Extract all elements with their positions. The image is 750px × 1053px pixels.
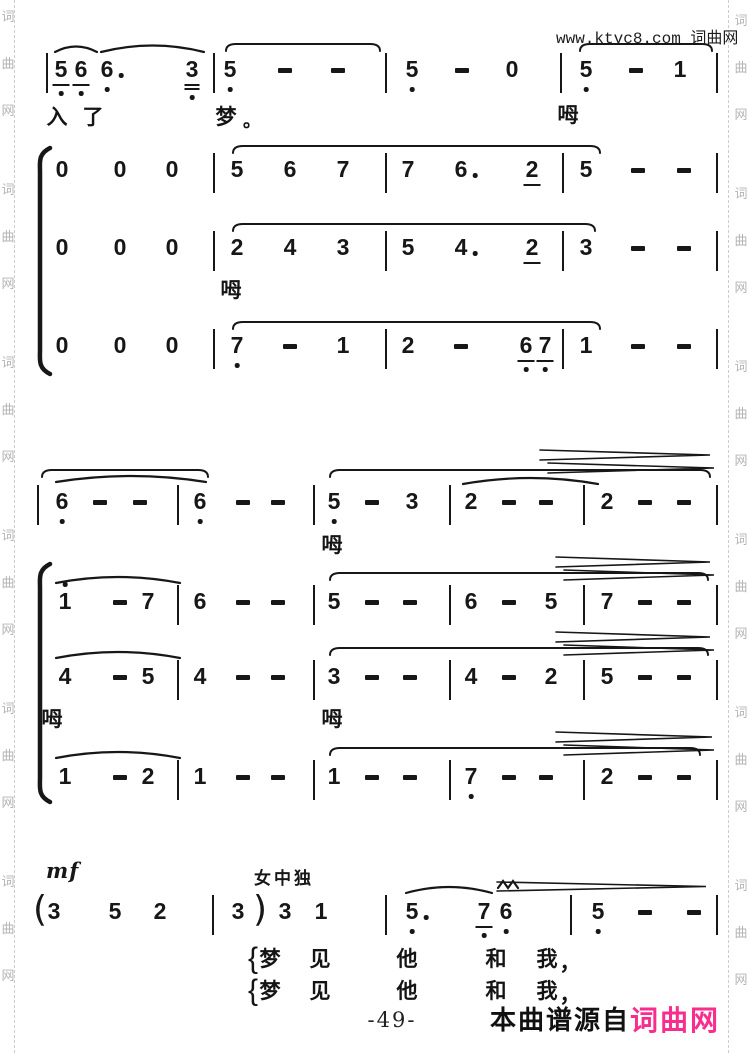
barline	[562, 231, 564, 271]
side-watermark-char: 词	[734, 875, 747, 894]
low-octave-dot	[524, 367, 529, 372]
barline	[449, 585, 451, 625]
side-watermark-char: 词	[734, 356, 747, 375]
duration-dash	[677, 600, 691, 605]
note-digit: 0	[166, 236, 179, 259]
note-digit: 0	[166, 158, 179, 181]
duration-dash	[365, 775, 379, 780]
low-octave-dot	[596, 929, 601, 934]
note-digit: 6	[284, 158, 297, 181]
barline	[716, 485, 718, 525]
note-digit: 7	[231, 334, 244, 357]
lyric-char: 他	[397, 948, 418, 971]
note-digit: 6	[520, 334, 533, 357]
side-watermark-char: 曲	[734, 749, 747, 768]
duration-dash	[278, 68, 292, 73]
barline	[449, 660, 451, 700]
duration-dash	[133, 500, 147, 505]
duration-dash	[631, 168, 645, 173]
note-digit: 0	[114, 334, 127, 357]
note-digit: 1	[194, 765, 207, 788]
side-watermark-char: 词	[734, 702, 747, 721]
barline	[46, 53, 48, 93]
slur-arc	[56, 752, 180, 758]
note-digit: 6	[194, 490, 207, 513]
note-digit: 2	[526, 236, 539, 259]
duration-dash	[271, 600, 285, 605]
lyric-char: 呣	[322, 534, 343, 557]
lyric-char: 和	[486, 980, 507, 1003]
barline	[583, 660, 585, 700]
duration-dash	[539, 500, 553, 505]
note-digit: 5	[406, 900, 419, 923]
right-margin-divider	[728, 0, 729, 1053]
duration-dash	[631, 246, 645, 251]
side-watermark-char: 词	[1, 6, 14, 25]
lyric-char: ，	[560, 984, 581, 1007]
side-watermark-char: 曲	[1, 53, 14, 72]
side-watermark-char: 词	[734, 10, 747, 29]
barline	[562, 329, 564, 369]
note-underline	[53, 84, 70, 86]
barline	[716, 760, 718, 800]
side-watermark-char: 词	[1, 525, 14, 544]
note-digit: 4	[284, 236, 297, 259]
note-underline	[524, 184, 541, 186]
side-watermark-char: 网	[1, 446, 14, 465]
note-digit: 2	[465, 490, 478, 513]
duration-dash	[113, 600, 127, 605]
hairpin-decrescendo	[540, 450, 710, 460]
barline	[716, 895, 718, 935]
note-digit: 4	[465, 665, 478, 688]
low-octave-dot	[59, 91, 64, 96]
note-digit: 5	[328, 490, 341, 513]
note-digit: 5	[231, 158, 244, 181]
barline	[213, 53, 215, 93]
slur-arc	[56, 652, 180, 658]
side-watermark-char: 网	[734, 104, 747, 123]
barline	[212, 895, 214, 935]
note-underline	[476, 926, 493, 928]
phrase-slur	[233, 146, 600, 153]
note-digit: 2	[545, 665, 558, 688]
phrase-slur	[330, 648, 708, 655]
score-sheet: www.ktvc8.com 词曲网 mf 女中独 -49- 本曲谱源自 词曲网 …	[0, 0, 750, 1053]
duration-dash	[502, 600, 516, 605]
note-digit: 5	[592, 900, 605, 923]
side-watermark-char: 网	[1, 792, 14, 811]
note-digit: 5	[142, 665, 155, 688]
barline	[716, 660, 718, 700]
note-digit: 6	[101, 58, 114, 81]
barline	[385, 53, 387, 93]
barline	[570, 895, 572, 935]
note-digit: 2	[402, 334, 415, 357]
barline	[213, 329, 215, 369]
note-digit: 5	[545, 590, 558, 613]
duration-dash	[687, 910, 701, 915]
high-octave-dot	[63, 582, 68, 587]
side-watermark-char: 曲	[1, 572, 14, 591]
note-digit: 7	[539, 334, 552, 357]
barline	[177, 760, 179, 800]
note-digit: 2	[142, 765, 155, 788]
note-digit: 3	[337, 236, 350, 259]
note-digit: 5	[580, 58, 593, 81]
note-digit: 5	[402, 236, 415, 259]
low-octave-dot	[410, 87, 415, 92]
note-digit: 5	[55, 58, 68, 81]
barline	[385, 895, 387, 935]
duration-dash	[403, 600, 417, 605]
duration-dash	[236, 600, 250, 605]
system-brace	[40, 564, 50, 802]
barline	[583, 585, 585, 625]
lyric-brace: {	[248, 974, 258, 1007]
duration-dash	[365, 675, 379, 680]
side-watermark-char: 词	[1, 179, 14, 198]
duration-dash	[283, 344, 297, 349]
note-digit: 7	[337, 158, 350, 181]
slur-arc	[56, 476, 206, 482]
duration-dash	[677, 344, 691, 349]
note-digit: 0	[56, 158, 69, 181]
barline	[562, 153, 564, 193]
lyric-char: 他	[397, 980, 418, 1003]
low-octave-dot	[410, 929, 415, 934]
top-watermark: www.ktvc8.com 词曲网	[556, 24, 738, 48]
duration-dash	[454, 344, 468, 349]
page-number: -49-	[350, 1008, 434, 1032]
duration-dash	[638, 500, 652, 505]
side-watermark-char: 网	[1, 619, 14, 638]
side-watermark-char: 曲	[1, 399, 14, 418]
phrase-slur	[233, 224, 595, 231]
slur-arc	[55, 47, 97, 53]
phrase-slur	[330, 573, 708, 580]
slur-arc	[56, 577, 180, 583]
side-watermark-char: 曲	[734, 230, 747, 249]
lyric-char: 梦	[260, 980, 281, 1003]
note-digit: 4	[455, 236, 468, 259]
note-digit: 3	[279, 900, 292, 923]
augmentation-dot	[473, 173, 478, 178]
note-digit: 6	[194, 590, 207, 613]
parenthesis: (	[33, 892, 47, 928]
footer-brand-watermark: 词曲网	[630, 999, 720, 1039]
duration-dash	[677, 675, 691, 680]
side-watermark-char: 曲	[1, 226, 14, 245]
lyric-brace: {	[248, 942, 258, 975]
barline	[716, 153, 718, 193]
note-digit: 7	[601, 590, 614, 613]
side-watermark-char: 网	[734, 277, 747, 296]
note-digit: 5	[109, 900, 122, 923]
barline	[449, 485, 451, 525]
note-digit: 7	[465, 765, 478, 788]
low-octave-dot	[543, 367, 548, 372]
duration-dash	[502, 500, 516, 505]
slur-arc	[463, 478, 598, 484]
note-digit: 0	[56, 236, 69, 259]
duration-dash	[113, 675, 127, 680]
lyric-char: 梦	[260, 948, 281, 971]
note-digit: 4	[194, 665, 207, 688]
augmentation-dot	[473, 251, 478, 256]
duration-dash	[271, 500, 285, 505]
duration-dash	[631, 344, 645, 349]
side-watermark-char: 曲	[734, 403, 747, 422]
note-digit: 0	[114, 158, 127, 181]
barline	[560, 53, 562, 93]
note-digit: 0	[506, 58, 519, 81]
note-digit: 3	[406, 490, 419, 513]
mordent-ornament	[498, 881, 518, 888]
note-digit: 2	[231, 236, 244, 259]
note-underline	[73, 84, 90, 86]
note-digit: 5	[580, 158, 593, 181]
note-digit: 1	[337, 334, 350, 357]
barline	[177, 485, 179, 525]
augmentation-dot	[424, 915, 429, 920]
note-digit: 6	[455, 158, 468, 181]
note-digit: 3	[580, 236, 593, 259]
note-digit: 1	[59, 765, 72, 788]
lyric-char: 我	[537, 980, 558, 1003]
duration-dash	[629, 68, 643, 73]
lyric-char: 我	[537, 948, 558, 971]
note-digit: 1	[580, 334, 593, 357]
hairpin-decrescendo	[564, 570, 714, 580]
note-digit: 7	[478, 900, 491, 923]
duration-dash	[236, 775, 250, 780]
note-digit: 0	[114, 236, 127, 259]
barline	[213, 153, 215, 193]
side-watermark-char: 词	[1, 352, 14, 371]
note-digit: 6	[56, 490, 69, 513]
lyric-char: 呣	[558, 104, 579, 127]
barline	[313, 760, 315, 800]
note-digit: 1	[59, 590, 72, 613]
side-watermark-char: 词	[734, 183, 747, 202]
note-digit: 5	[601, 665, 614, 688]
barline	[716, 53, 718, 93]
note-digit: 1	[674, 58, 687, 81]
side-watermark-char: 曲	[1, 918, 14, 937]
side-watermark-char: 词	[1, 871, 14, 890]
barline	[385, 153, 387, 193]
barline	[177, 585, 179, 625]
note-underline	[524, 262, 541, 264]
note-digit: 5	[224, 58, 237, 81]
barline	[716, 231, 718, 271]
barline	[177, 660, 179, 700]
lyric-char: 。	[243, 112, 261, 132]
note-digit: 4	[59, 665, 72, 688]
side-watermark-char: 词	[734, 529, 747, 548]
score-marks-layer	[0, 0, 750, 1053]
phrase-slur	[330, 470, 710, 477]
phrase-slur	[226, 44, 380, 51]
side-watermark-char: 曲	[734, 922, 747, 941]
lyric-char: 入	[47, 106, 68, 129]
side-watermark-char: 网	[1, 100, 14, 119]
barline	[449, 760, 451, 800]
note-digit: 0	[56, 334, 69, 357]
hairpin-decrescendo	[556, 732, 712, 742]
parenthesis: )	[253, 892, 267, 928]
phrase-slur	[233, 322, 600, 329]
note-underline	[518, 360, 535, 362]
barline	[385, 231, 387, 271]
note-digit: 7	[142, 590, 155, 613]
note-digit: 3	[328, 665, 341, 688]
hairpin-decrescendo	[497, 882, 706, 891]
hairpin-decrescendo	[556, 557, 710, 567]
note-digit: 2	[601, 765, 614, 788]
side-watermark-char: 曲	[734, 57, 747, 76]
lyric-char: 了	[83, 106, 104, 129]
lyric-char: 呣	[42, 708, 63, 731]
lyric-char: 见	[310, 948, 331, 971]
barline	[313, 585, 315, 625]
system-brace	[40, 148, 50, 374]
barline	[716, 585, 718, 625]
duration-dash	[502, 675, 516, 680]
augmentation-dot	[119, 73, 124, 78]
low-octave-dot	[235, 363, 240, 368]
low-octave-dot	[79, 91, 84, 96]
duration-dash	[403, 775, 417, 780]
side-watermark-char: 曲	[1, 745, 14, 764]
duration-dash	[271, 675, 285, 680]
duration-dash	[236, 675, 250, 680]
note-digit: 0	[166, 334, 179, 357]
note-digit: 1	[315, 900, 328, 923]
side-watermark-char: 网	[734, 450, 747, 469]
note-digit: 6	[465, 590, 478, 613]
lyric-char: 和	[486, 948, 507, 971]
note-underline	[185, 88, 200, 90]
barline	[313, 485, 315, 525]
duration-dash	[365, 500, 379, 505]
low-octave-dot	[105, 87, 110, 92]
side-watermark-char: 曲	[734, 576, 747, 595]
low-octave-dot	[584, 87, 589, 92]
side-watermark-char: 网	[734, 796, 747, 815]
low-octave-dot	[190, 95, 195, 100]
duration-dash	[271, 775, 285, 780]
duration-dash	[677, 500, 691, 505]
note-digit: 5	[328, 590, 341, 613]
note-digit: 6	[75, 58, 88, 81]
duration-dash	[638, 600, 652, 605]
note-digit: 2	[526, 158, 539, 181]
side-watermark-char: 网	[734, 969, 747, 988]
duration-dash	[403, 675, 417, 680]
duration-dash	[638, 675, 652, 680]
barline	[385, 329, 387, 369]
low-octave-dot	[504, 929, 509, 934]
duration-dash	[502, 775, 516, 780]
dynamic-mf-marking: mf	[46, 858, 79, 883]
slur-arc	[406, 887, 492, 893]
barline	[37, 485, 39, 525]
lyric-char: 梦	[216, 106, 237, 129]
low-octave-dot	[60, 519, 65, 524]
phrase-slur	[42, 470, 208, 477]
lyric-char: ，	[560, 952, 581, 975]
duration-dash	[677, 775, 691, 780]
note-digit: 2	[154, 900, 167, 923]
note-digit: 7	[402, 158, 415, 181]
duration-dash	[638, 910, 652, 915]
note-digit: 3	[48, 900, 61, 923]
lyric-char: 见	[310, 980, 331, 1003]
lyric-char: 呣	[221, 279, 242, 302]
side-watermark-char: 网	[734, 623, 747, 642]
note-digit: 6	[500, 900, 513, 923]
low-octave-dot	[198, 519, 203, 524]
barline	[213, 231, 215, 271]
duration-dash	[539, 775, 553, 780]
duration-dash	[677, 246, 691, 251]
lyric-char: 呣	[322, 708, 343, 731]
note-digit: 1	[328, 765, 341, 788]
low-octave-dot	[482, 933, 487, 938]
duration-dash	[93, 500, 107, 505]
hairpin-decrescendo	[564, 645, 714, 655]
phrase-slur	[330, 748, 700, 755]
hairpin-decrescendo	[548, 463, 714, 473]
duration-dash	[331, 68, 345, 73]
side-watermark-char: 网	[1, 965, 14, 984]
duration-dash	[113, 775, 127, 780]
hairpin-decrescendo	[564, 745, 714, 755]
note-digit: 3	[232, 900, 245, 923]
barline	[716, 329, 718, 369]
side-watermark-char: 网	[1, 273, 14, 292]
low-octave-dot	[469, 794, 474, 799]
note-digit: 2	[601, 490, 614, 513]
low-octave-dot	[228, 87, 233, 92]
duration-dash	[236, 500, 250, 505]
note-digit: 3	[186, 58, 199, 81]
barline	[583, 760, 585, 800]
slur-arc	[101, 46, 204, 53]
barline	[313, 660, 315, 700]
duration-dash	[677, 168, 691, 173]
duration-dash	[638, 775, 652, 780]
note-underline	[185, 84, 200, 86]
low-octave-dot	[332, 519, 337, 524]
note-underline	[537, 360, 554, 362]
duration-dash	[365, 600, 379, 605]
note-digit: 5	[406, 58, 419, 81]
alto-solo-label: 女中独	[254, 864, 314, 889]
hairpin-decrescendo	[556, 632, 710, 642]
side-watermark-char: 词	[1, 698, 14, 717]
barline	[583, 485, 585, 525]
duration-dash	[455, 68, 469, 73]
